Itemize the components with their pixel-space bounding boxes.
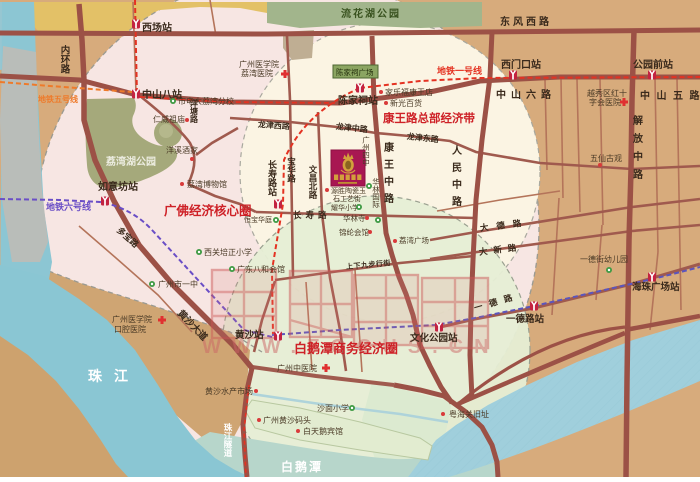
svg-text:黄沙水产市场: 黄沙水产市场 — [205, 386, 253, 396]
svg-text:白鹅潭商务经济圈: 白鹅潭商务经济圈 — [294, 341, 398, 356]
svg-text:一德街幼儿园: 一德街幼儿园 — [580, 254, 628, 264]
svg-text:珠江: 珠江 — [88, 368, 140, 384]
svg-text:广州四中: 广州四中 — [361, 135, 370, 168]
svg-text:黄沙站: 黄沙站 — [235, 329, 264, 341]
svg-text:海珠广场站: 海珠广场站 — [632, 281, 680, 293]
svg-text:广州医学院: 广州医学院 — [239, 59, 279, 69]
svg-text:荔湾广场: 荔湾广场 — [399, 235, 429, 245]
svg-text:广东八和会馆: 广东八和会馆 — [237, 264, 285, 274]
svg-text:流花湖公园: 流花湖公园 — [341, 7, 401, 20]
svg-text:文昌北路: 文昌北路 — [308, 164, 318, 200]
svg-text:地铁五号线: 地铁五号线 — [38, 94, 78, 104]
svg-text:中山五路: 中山五路 — [640, 89, 700, 102]
svg-text:越秀区红十: 越秀区红十 — [587, 88, 627, 98]
svg-text:长寿路: 长寿路 — [293, 210, 331, 220]
svg-text:白鹅潭: 白鹅潭 — [281, 459, 323, 474]
svg-text:陈家祠站: 陈家祠站 — [338, 94, 378, 107]
svg-text:白天鹅宾馆: 白天鹅宾馆 — [303, 426, 343, 436]
svg-text:中山八站: 中山八站 — [142, 88, 182, 101]
svg-text:源胜陶瓷玉: 源胜陶瓷玉 — [331, 186, 366, 195]
svg-text:内环路: 内环路 — [59, 44, 71, 74]
svg-text:人民中路: 人民中路 — [450, 144, 462, 213]
svg-text:新光百货: 新光百货 — [390, 98, 422, 108]
svg-text:一德路站: 一德路站 — [506, 313, 545, 325]
svg-text:荔湾湖公园: 荔湾湖公园 — [105, 155, 156, 168]
svg-text:康王中路: 康王中路 — [382, 141, 394, 210]
svg-text:华林寺: 华林寺 — [343, 213, 366, 223]
svg-text:荔湾医院: 荔湾医院 — [241, 68, 273, 78]
svg-text:长寿路站: 长寿路站 — [267, 159, 278, 197]
svg-text:锦纶会馆: 锦纶会馆 — [339, 227, 369, 237]
svg-text:康王路总部经济带: 康王路总部经济带 — [383, 111, 475, 125]
svg-text:仁威祖庙: 仁威祖庙 — [153, 114, 185, 124]
svg-text:珠江隧道: 珠江隧道 — [223, 422, 233, 458]
svg-text:西门口站: 西门口站 — [501, 58, 541, 71]
svg-text:市电大荔湾分校: 市电大荔湾分校 — [178, 96, 234, 106]
svg-text:粤海关旧址: 粤海关旧址 — [449, 409, 489, 419]
svg-text:广州市一中: 广州市一中 — [158, 279, 198, 289]
svg-text:广州医学院: 广州医学院 — [112, 314, 152, 324]
svg-text:家乐福康王店: 家乐福康王店 — [385, 87, 433, 97]
svg-text:西场站: 西场站 — [142, 21, 172, 34]
svg-text:字会医院: 字会医院 — [589, 97, 621, 107]
svg-text:石工艺街: 石工艺街 — [333, 194, 361, 203]
svg-text:广佛经济核心圈: 广佛经济核心圈 — [164, 203, 252, 218]
svg-text:五仙古观: 五仙古观 — [590, 153, 622, 163]
svg-text:陈家祠广场: 陈家祠广场 — [336, 67, 374, 77]
svg-text:中山六路: 中山六路 — [496, 88, 556, 101]
svg-text:西关培正小学: 西关培正小学 — [204, 247, 252, 257]
svg-text:口腔医院: 口腔医院 — [114, 324, 146, 334]
svg-text:荔湾博物馆: 荔湾博物馆 — [187, 179, 227, 189]
svg-text:恒宝华庭: 恒宝华庭 — [244, 215, 272, 224]
svg-text:地铁一号线: 地铁一号线 — [437, 65, 482, 76]
svg-text:地铁六号线: 地铁六号线 — [46, 201, 91, 212]
svg-text:沙面小学: 沙面小学 — [317, 403, 349, 413]
svg-text:公园前站: 公园前站 — [633, 58, 673, 71]
svg-text:耀华小学: 耀华小学 — [331, 203, 359, 212]
svg-text:宝华路: 宝华路 — [287, 156, 297, 183]
svg-text:广州中医院: 广州中医院 — [277, 363, 317, 373]
svg-text:文化公园站: 文化公园站 — [409, 332, 458, 344]
svg-text:如意坊站: 如意坊站 — [98, 180, 138, 193]
svg-text:东风西路: 东风西路 — [500, 15, 552, 28]
svg-text:华林国际: 华林国际 — [371, 177, 380, 210]
svg-text:洋溪酒家: 洋溪酒家 — [166, 145, 198, 155]
svg-text:广州黄沙码头: 广州黄沙码头 — [263, 415, 311, 425]
